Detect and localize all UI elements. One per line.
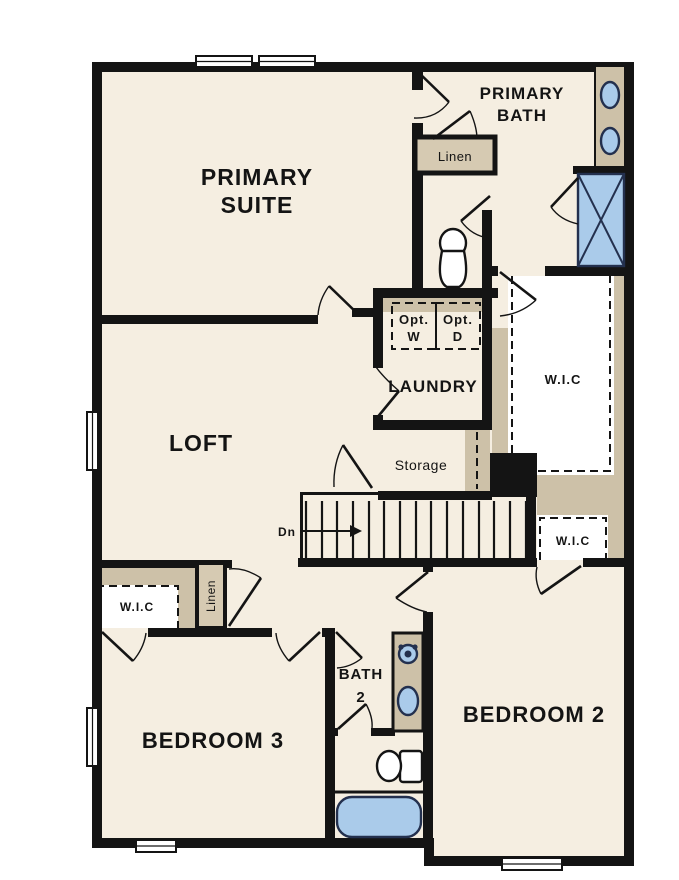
linen-lower-label: Linen <box>204 580 218 612</box>
wic-bedroom3-label: W.I.C <box>120 600 154 614</box>
wall-segment <box>298 558 537 567</box>
stair-edge <box>300 492 303 558</box>
washer-label-line1: Opt. <box>399 312 429 327</box>
wall-segment <box>325 728 338 736</box>
primary-suite-label-line1: PRIMARY <box>201 164 313 190</box>
bath2-label-line1: BATH <box>339 666 384 683</box>
wic-bedroom2-shelf-right <box>608 515 624 560</box>
wall-segment <box>482 210 492 430</box>
washer-label-line2: W <box>407 329 420 344</box>
floor-plan: Dn Linen Linen Opt. W Opt. D <box>0 0 679 880</box>
window <box>136 840 176 852</box>
bath2-faucet-handle <box>412 644 417 649</box>
bath2-sink <box>398 687 418 715</box>
bath2-toilet-bowl <box>377 751 401 781</box>
linen-upper-label: Linen <box>438 149 472 164</box>
wall-segment <box>583 558 634 567</box>
wall-segment <box>378 491 492 500</box>
window <box>87 412 98 470</box>
wall-segment <box>624 62 634 866</box>
stair-rail <box>300 492 378 495</box>
wall-segment <box>423 560 433 572</box>
storage-label: Storage <box>395 457 448 473</box>
dryer-label-line2: D <box>453 329 463 344</box>
wall-segment <box>373 288 498 298</box>
primary-bath-label-line2: BATH <box>497 106 547 125</box>
primary-sink-2 <box>601 128 619 154</box>
wall-segment <box>373 420 490 430</box>
primary-suite-label-line2: SUITE <box>221 192 294 218</box>
bath2-faucet-handle <box>398 644 403 649</box>
wall-segment <box>92 62 634 72</box>
wall-segment <box>545 266 634 276</box>
wall-segment <box>102 315 318 324</box>
wall-segment <box>482 266 498 276</box>
structural-block <box>490 453 537 497</box>
bedroom3-label: BEDROOM 3 <box>142 728 284 753</box>
bedroom2-label: BEDROOM 2 <box>463 702 605 727</box>
stairs-down-label: Dn <box>278 525 296 539</box>
wic-bedroom2-shelf-top <box>537 497 624 515</box>
bath2-faucet-center <box>405 651 412 658</box>
bath2-toilet-tank <box>400 751 422 782</box>
wall-segment <box>325 628 335 848</box>
water-closet-toilet-base <box>440 251 466 287</box>
wic-bedroom2-label: W.I.C <box>556 534 590 548</box>
dryer-label-line1: Opt. <box>443 312 473 327</box>
wall-segment <box>526 497 536 567</box>
window <box>87 708 98 766</box>
wic-primary-shelf-right <box>614 276 624 475</box>
wall-segment <box>423 612 433 628</box>
primary-bath-label-line1: PRIMARY <box>480 84 565 103</box>
window <box>196 56 252 67</box>
laundry-counter <box>378 298 488 312</box>
window <box>259 56 315 67</box>
wall-segment <box>371 728 395 736</box>
laundry-label: LAUNDRY <box>388 377 477 396</box>
wall-segment <box>424 838 434 866</box>
bathtub <box>337 797 421 837</box>
loft-label: LOFT <box>169 430 233 456</box>
primary-sink-1 <box>601 82 619 108</box>
floor-plan-canvas: Dn Linen Linen Opt. W Opt. D <box>0 0 679 880</box>
wic-primary-shelf-left <box>492 328 508 475</box>
bath2-label-line2: 2 <box>356 689 365 706</box>
window <box>502 858 562 870</box>
wall-segment <box>92 628 102 637</box>
wic-primary-label: W.I.C <box>545 372 582 387</box>
wall-segment <box>373 288 383 368</box>
